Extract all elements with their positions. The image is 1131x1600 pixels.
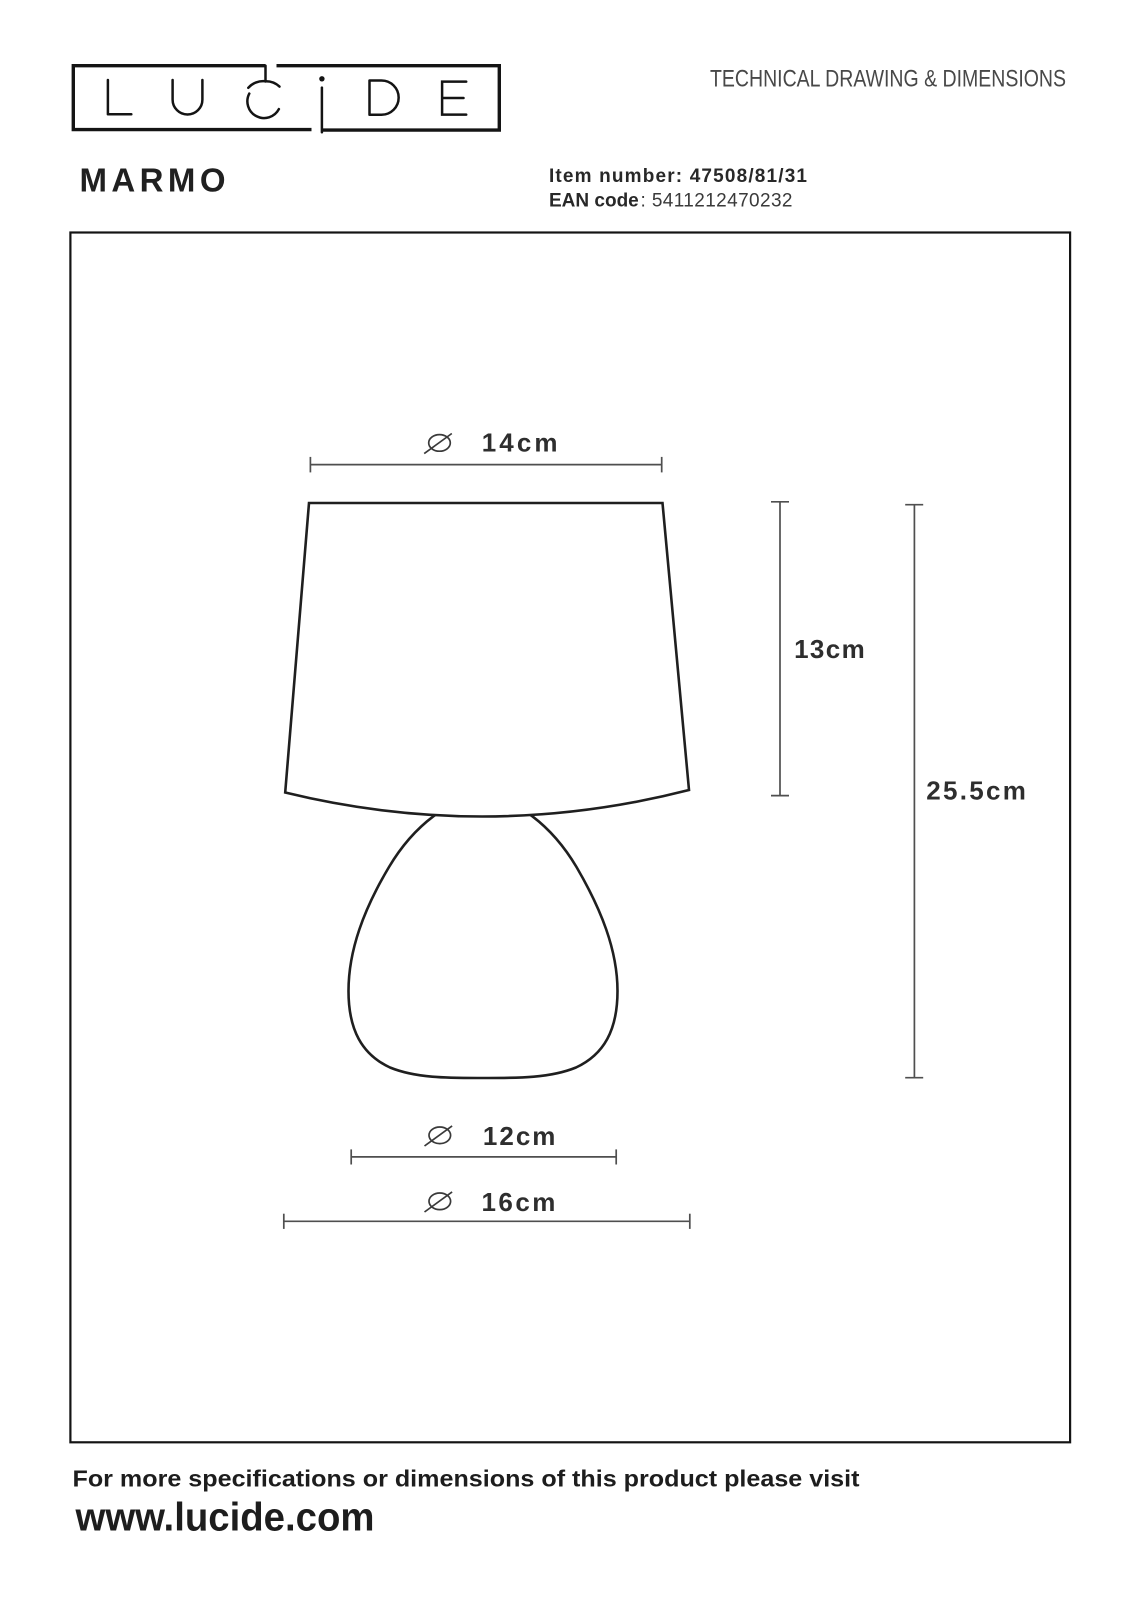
svg-text:14cm: 14cm [482, 428, 558, 458]
svg-text:TECHNICAL DRAWING & DIMENSIONS: TECHNICAL DRAWING & DIMENSIONS [710, 66, 1066, 93]
svg-text:EAN code: EAN code [549, 191, 639, 212]
svg-text:For more specifications or dim: For more specifications or dimensions of… [73, 1466, 860, 1492]
svg-text:12cm: 12cm [483, 1121, 556, 1151]
svg-text:www.lucide.com: www.lucide.com [75, 1496, 375, 1540]
svg-text:Item number: 47508/81/31: Item number: 47508/81/31 [549, 166, 807, 187]
svg-text:MARMO: MARMO [80, 161, 226, 198]
svg-text:16cm: 16cm [482, 1187, 556, 1217]
svg-text:13cm: 13cm [794, 634, 865, 664]
svg-text:: 5411212470232: : 5411212470232 [641, 191, 793, 212]
